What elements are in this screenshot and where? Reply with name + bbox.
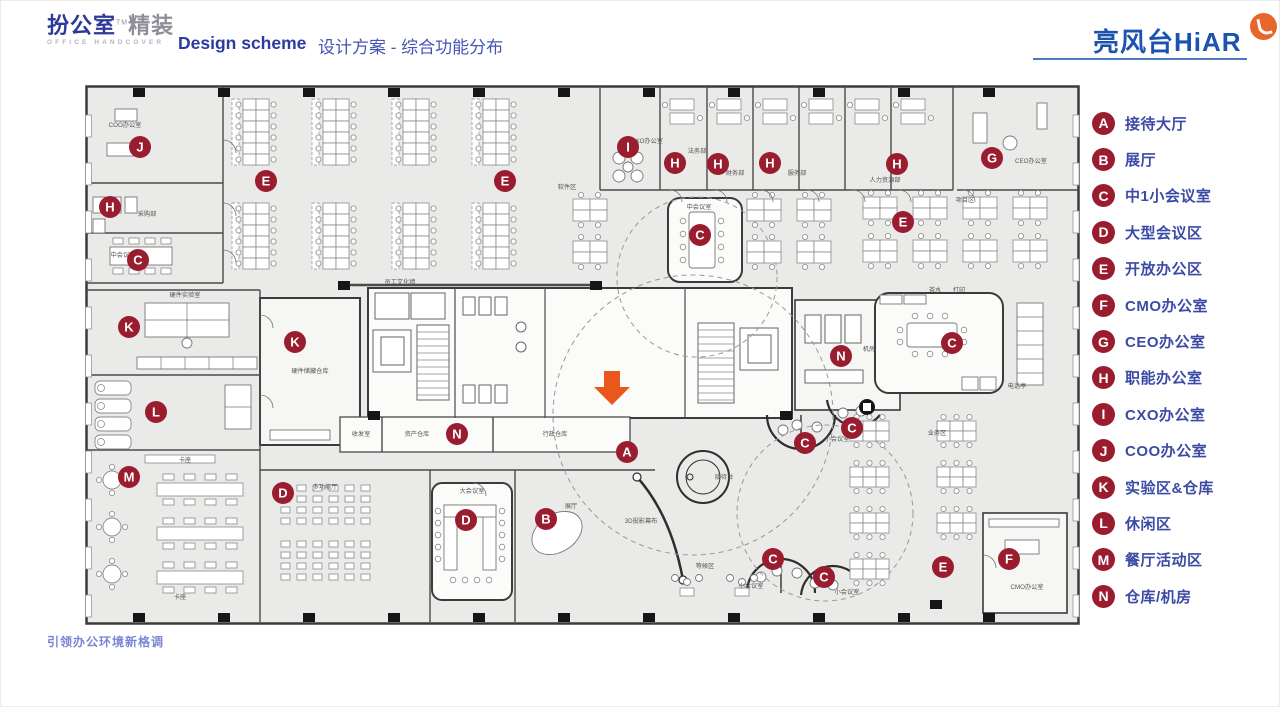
legend-item-f: F CMO办公室 xyxy=(1092,287,1214,323)
plan-label: 大会议室 xyxy=(460,487,485,495)
legend-letter-badge: L xyxy=(1092,512,1115,535)
svg-text:G: G xyxy=(987,151,997,166)
phone-booth-inner xyxy=(863,403,871,411)
plan-marker-h: H xyxy=(759,152,781,174)
plan-marker-c: C xyxy=(794,432,816,454)
legend-letter-badge: N xyxy=(1092,585,1115,608)
plan-label: 财务部 xyxy=(726,169,745,177)
plan-label: 采购部 xyxy=(138,210,157,218)
svg-text:C: C xyxy=(133,253,143,268)
logo-subtitle: OFFICE HANDCOVER xyxy=(47,40,174,47)
legend-letter-badge: M xyxy=(1092,548,1115,571)
legend-label: 中1小会议室 xyxy=(1125,185,1211,206)
legend-item-i: I CXO办公室 xyxy=(1092,396,1214,432)
legend-letter-badge: F xyxy=(1092,294,1115,317)
plan-marker-d: D xyxy=(455,509,477,531)
plan-label: 硬件储藏仓库 xyxy=(291,367,328,375)
legend-label: 餐厅活动区 xyxy=(1125,549,1203,570)
legend-item-a: A 接待大厅 xyxy=(1092,105,1214,141)
svg-text:K: K xyxy=(290,335,300,350)
plan-marker-l: L xyxy=(145,401,167,423)
legend-letter-badge: A xyxy=(1092,112,1115,135)
legend-letter-badge: C xyxy=(1092,184,1115,207)
floor-plan-svg: 软件区项目区员工文化墙COO办公室采购部中会议室CXO办公室法务部财务部服务部人… xyxy=(85,85,1080,625)
svg-text:I: I xyxy=(626,140,630,155)
svg-text:H: H xyxy=(713,157,722,172)
plan-marker-j: J xyxy=(129,136,151,158)
svg-text:A: A xyxy=(622,445,632,460)
plan-label: 卡座 xyxy=(179,456,191,464)
plan-label: 3D投影幕布 xyxy=(625,517,658,525)
plan-marker-c: C xyxy=(841,417,863,439)
plan-label: 打印 xyxy=(953,286,965,294)
svg-text:H: H xyxy=(105,200,114,215)
page-title-en: Design scheme xyxy=(178,33,306,54)
legend-item-g: G CEO办公室 xyxy=(1092,323,1214,359)
plan-marker-e: E xyxy=(494,170,516,192)
plan-marker-m: M xyxy=(118,466,140,488)
plan-marker-c: C xyxy=(813,566,835,588)
page-title-zh: 设计方案 - 综合功能分布 xyxy=(318,33,503,58)
svg-text:C: C xyxy=(800,436,810,451)
legend-letter-badge: B xyxy=(1092,148,1115,171)
legend-letter-badge: E xyxy=(1092,257,1115,280)
plan-marker-a: A xyxy=(616,441,638,463)
plan-label: CEO办公室 xyxy=(1015,157,1047,165)
legend-label: 仓库/机房 xyxy=(1125,586,1192,607)
legend-label: CEO办公室 xyxy=(1125,331,1206,352)
plan-marker-i: I xyxy=(617,136,639,158)
plan-marker-f: F xyxy=(998,548,1020,570)
legend-item-m: M 餐厅活动区 xyxy=(1092,542,1214,578)
plan-label: 人力资源部 xyxy=(870,176,901,184)
svg-text:B: B xyxy=(541,512,550,527)
plan-label: 业务区 xyxy=(928,429,947,437)
badge-glyph xyxy=(1256,17,1272,36)
plan-label: 服务部 xyxy=(788,169,807,177)
plan-marker-c: C xyxy=(689,224,711,246)
svg-text:E: E xyxy=(899,215,908,230)
svg-text:H: H xyxy=(892,157,901,172)
svg-text:C: C xyxy=(695,228,705,243)
plan-label: 接待台 xyxy=(715,473,734,481)
plan-marker-c: C xyxy=(127,249,149,271)
legend-item-l: L 休闲区 xyxy=(1092,505,1214,541)
svg-text:E: E xyxy=(262,174,271,189)
svg-text:M: M xyxy=(124,470,135,485)
plan-label: 行政仓库 xyxy=(543,430,568,438)
svg-text:E: E xyxy=(501,174,510,189)
legend-label: 职能办公室 xyxy=(1125,367,1203,388)
legend-item-h: H 职能办公室 xyxy=(1092,360,1214,396)
plan-label: 硬件实验室 xyxy=(170,291,201,299)
legend-label: CXO办公室 xyxy=(1125,404,1206,425)
plan-label: 机房 xyxy=(863,345,875,353)
legend-label: 大型会议区 xyxy=(1125,222,1203,243)
legend-item-e: E 开放办公区 xyxy=(1092,251,1214,287)
legend-letter-badge: K xyxy=(1092,476,1115,499)
plan-marker-n: N xyxy=(446,423,468,445)
plan-marker-c: C xyxy=(762,548,784,570)
plan-label: 资产仓库 xyxy=(405,430,430,438)
plan-marker-e: E xyxy=(255,170,277,192)
legend: A 接待大厅 B 展厅 C 中1小会议室 D 大型会议区 E 开放办公区 F C… xyxy=(1092,105,1214,614)
svg-text:L: L xyxy=(152,405,160,420)
svg-text:C: C xyxy=(847,421,857,436)
svg-text:F: F xyxy=(1005,552,1013,567)
plan-marker-h: H xyxy=(707,153,729,175)
plan-label: 卡座 xyxy=(174,593,186,601)
company-logo: 扮公室TM精装 OFFICE HANDCOVER xyxy=(47,15,174,47)
slide-page: 扮公室TM精装 OFFICE HANDCOVER Design scheme 设… xyxy=(0,0,1280,707)
plan-marker-k: K xyxy=(118,316,140,338)
legend-label: 开放办公区 xyxy=(1125,258,1203,279)
legend-letter-badge: D xyxy=(1092,221,1115,244)
legend-item-d: D 大型会议区 xyxy=(1092,214,1214,250)
svg-text:H: H xyxy=(765,156,774,171)
plan-label: 中会议室 xyxy=(687,203,712,211)
plan-label: 法务部 xyxy=(688,147,707,155)
plan-label: 展厅 xyxy=(565,503,577,510)
svg-text:H: H xyxy=(670,156,679,171)
plan-marker-b: B xyxy=(535,508,557,530)
footer-slogan: 引领办公环境新格调 xyxy=(47,633,164,650)
legend-item-c: C 中1小会议室 xyxy=(1092,178,1214,214)
legend-letter-badge: J xyxy=(1092,439,1115,462)
plan-marker-k: K xyxy=(284,331,306,353)
plan-label: 员工文化墙 xyxy=(385,278,416,286)
plan-label: 软件区 xyxy=(558,183,577,191)
plan-label: 项目区 xyxy=(956,197,975,204)
legend-label: COO办公室 xyxy=(1125,440,1207,461)
legend-letter-badge: H xyxy=(1092,366,1115,389)
floor-plan: 软件区项目区员工文化墙COO办公室采购部中会议室CXO办公室法务部财务部服务部人… xyxy=(85,85,1080,625)
plan-label: 收发室 xyxy=(352,430,371,438)
legend-label: 实验区&仓库 xyxy=(1125,477,1214,498)
svg-text:C: C xyxy=(947,336,957,351)
legend-label: CMO办公室 xyxy=(1125,295,1208,316)
plan-marker-e: E xyxy=(892,211,914,233)
plan-marker-d: D xyxy=(272,482,294,504)
legend-label: 接待大厅 xyxy=(1125,113,1187,134)
legend-letter-badge: I xyxy=(1092,403,1115,426)
svg-text:D: D xyxy=(278,486,287,501)
svg-text:E: E xyxy=(939,560,948,575)
client-logo: 亮风台HiAR xyxy=(1093,22,1242,59)
svg-text:C: C xyxy=(768,552,778,567)
svg-text:C: C xyxy=(819,570,829,585)
plan-label: 小会议室 xyxy=(835,588,860,596)
plan-label: 等候区 xyxy=(696,562,715,570)
plan-marker-n: N xyxy=(830,345,852,367)
orange-badge-icon xyxy=(1250,13,1277,40)
svg-text:N: N xyxy=(452,427,461,442)
legend-letter-badge: G xyxy=(1092,330,1115,353)
plan-marker-e: E xyxy=(932,556,954,578)
plan-label: COO办公室 xyxy=(109,121,142,129)
svg-text:K: K xyxy=(124,320,134,335)
client-logo-underline xyxy=(1033,58,1247,60)
plan-marker-h: H xyxy=(886,153,908,175)
legend-item-j: J COO办公室 xyxy=(1092,433,1214,469)
plan-label: 茶水 xyxy=(929,286,942,294)
legend-item-b: B 展厅 xyxy=(1092,141,1214,177)
plan-label: 小会议室 xyxy=(739,582,764,590)
plan-label: 电话亭 xyxy=(1008,382,1027,390)
legend-label: 休闲区 xyxy=(1125,513,1172,534)
plan-marker-h: H xyxy=(664,152,686,174)
logo-wordmark: 扮公室TM精装 xyxy=(47,15,174,37)
svg-text:N: N xyxy=(836,349,845,364)
legend-item-n: N 仓库/机房 xyxy=(1092,578,1214,614)
tm-mark: TM xyxy=(116,20,128,27)
plan-label: 多功能厅 xyxy=(313,483,338,491)
plan-marker-h: H xyxy=(99,196,121,218)
svg-text:J: J xyxy=(136,140,143,155)
svg-text:D: D xyxy=(461,513,470,528)
plan-marker-c: C xyxy=(941,332,963,354)
legend-label: 展厅 xyxy=(1125,149,1156,170)
legend-item-k: K 实验区&仓库 xyxy=(1092,469,1214,505)
plan-marker-g: G xyxy=(981,147,1003,169)
plan-label: CMO办公室 xyxy=(1011,583,1044,591)
